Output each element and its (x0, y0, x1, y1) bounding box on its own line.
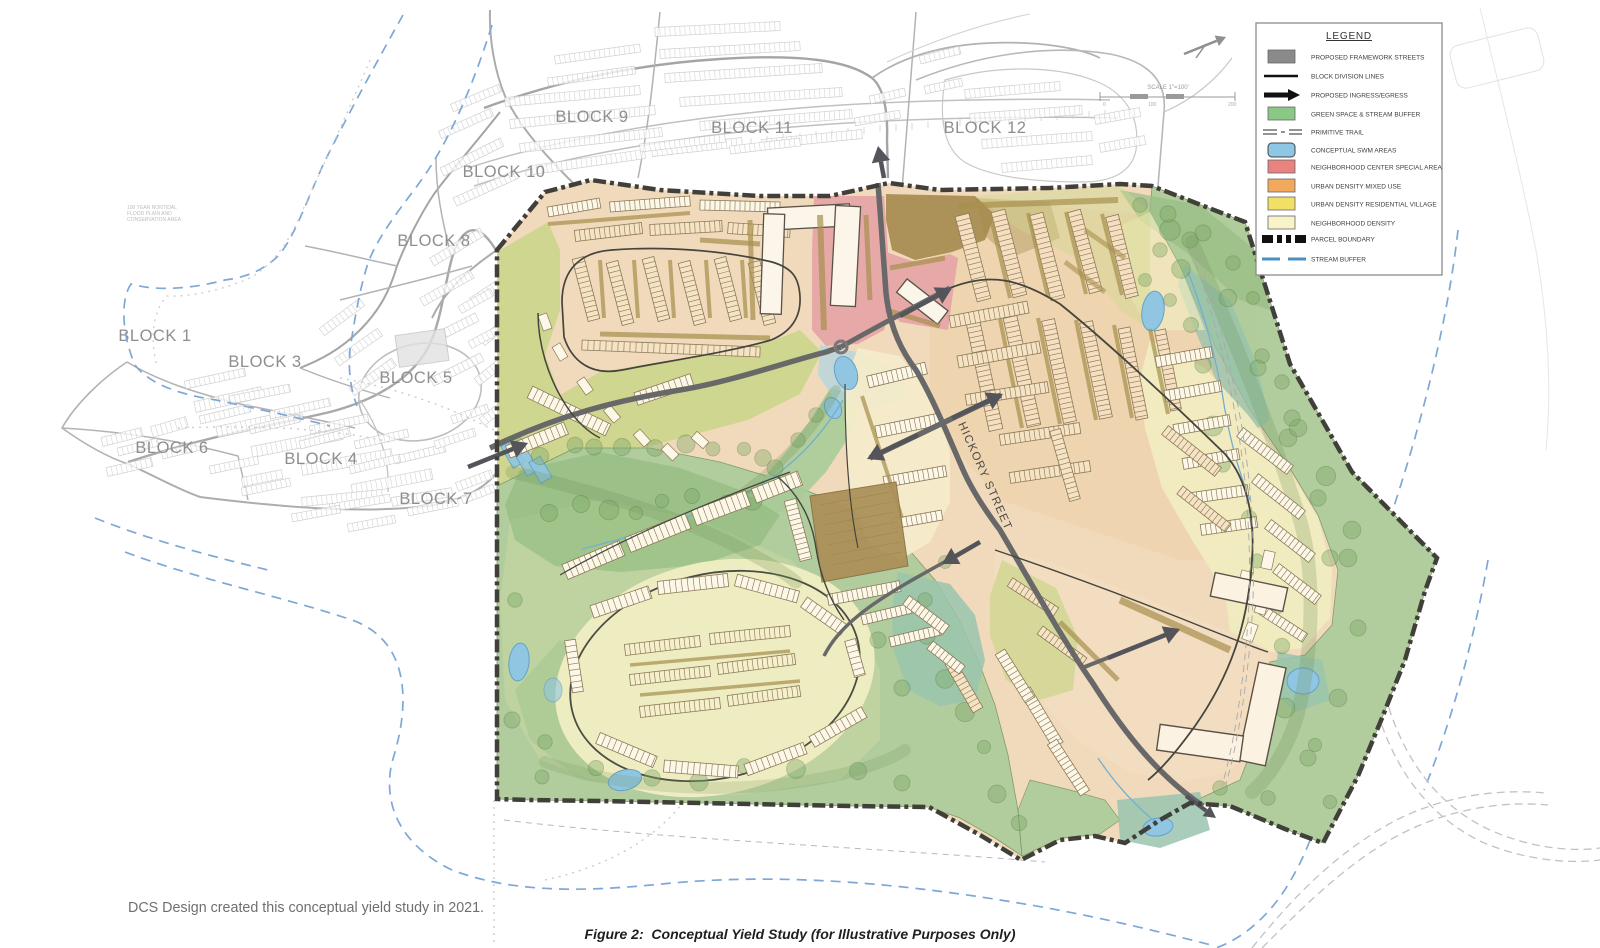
svg-text:BLOCK 6: BLOCK 6 (135, 439, 208, 457)
svg-text:SCALE 1"=100': SCALE 1"=100' (1147, 85, 1188, 91)
svg-text:STREAM BUFFER: STREAM BUFFER (1311, 257, 1366, 264)
svg-text:BLOCK 1: BLOCK 1 (118, 327, 191, 345)
svg-text:CONCEPTUAL SWM AREAS: CONCEPTUAL SWM AREAS (1311, 148, 1397, 155)
svg-text:0: 0 (1103, 102, 1106, 108)
svg-text:NEIGHBORHOOD CENTER SPECIAL AR: NEIGHBORHOOD CENTER SPECIAL AREA (1311, 165, 1443, 172)
svg-text:Figure 2: Conceptual Yield St: Figure 2: Conceptual Yield Study (for Il… (585, 926, 1016, 942)
svg-text:BLOCK 3: BLOCK 3 (228, 353, 301, 371)
svg-text:PROPOSED INGRESS/EGRESS: PROPOSED INGRESS/EGRESS (1311, 93, 1408, 100)
svg-text:BLOCK 9: BLOCK 9 (555, 108, 628, 126)
svg-text:BLOCK 10: BLOCK 10 (463, 163, 546, 181)
svg-text:BLOCK 12: BLOCK 12 (944, 119, 1027, 137)
svg-text:PARCEL BOUNDARY: PARCEL BOUNDARY (1311, 237, 1375, 244)
svg-text:200: 200 (1228, 102, 1237, 108)
svg-text:NEIGHBORHOOD DENSITY: NEIGHBORHOOD DENSITY (1311, 221, 1396, 228)
svg-text:100: 100 (1148, 102, 1157, 108)
svg-text:LEGEND: LEGEND (1326, 31, 1372, 42)
svg-text:PROPOSED FRAMEWORK STREETS: PROPOSED FRAMEWORK STREETS (1311, 55, 1425, 62)
svg-text:URBAN DENSITY RESIDENTIAL VILL: URBAN DENSITY RESIDENTIAL VILLAGE (1311, 202, 1437, 209)
svg-text:URBAN DENSITY MIXED USE: URBAN DENSITY MIXED USE (1311, 184, 1402, 191)
svg-text:DCS Design created this concep: DCS Design created this conceptual yield… (128, 900, 484, 916)
svg-text:GREEN SPACE & STREAM BUFFER: GREEN SPACE & STREAM BUFFER (1311, 112, 1421, 119)
svg-text:PRIMITIVE TRAIL: PRIMITIVE TRAIL (1311, 130, 1364, 137)
svg-text:BLOCK 4: BLOCK 4 (284, 450, 357, 468)
svg-text:BLOCK 5: BLOCK 5 (379, 369, 452, 387)
svg-text:BLOCK 8: BLOCK 8 (397, 232, 470, 250)
svg-text:CONSERVATION AREA: CONSERVATION AREA (127, 217, 182, 223)
svg-text:BLOCK 11: BLOCK 11 (711, 119, 793, 137)
svg-text:BLOCK 7: BLOCK 7 (399, 490, 472, 508)
svg-text:BLOCK DIVISION LINES: BLOCK DIVISION LINES (1311, 74, 1385, 81)
